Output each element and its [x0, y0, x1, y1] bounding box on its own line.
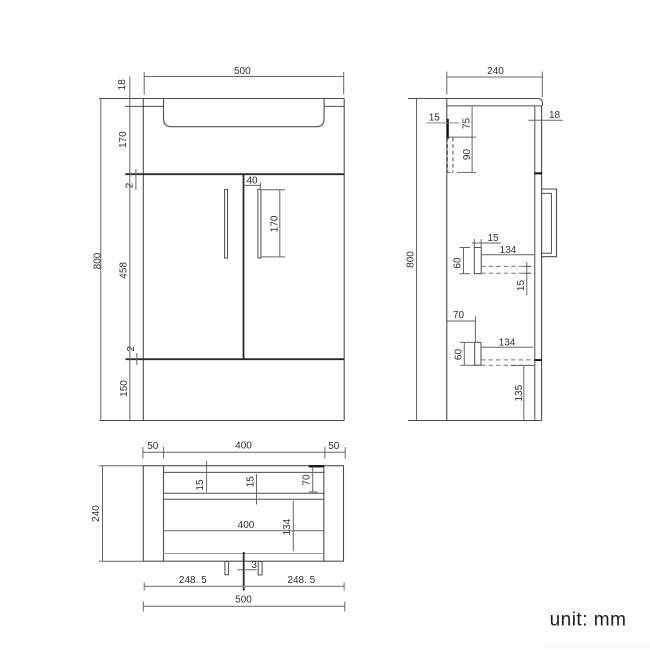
- svg-text:2: 2: [125, 182, 136, 188]
- svg-text:248. 5: 248. 5: [287, 575, 315, 586]
- svg-text:170: 170: [118, 131, 129, 148]
- svg-text:3: 3: [251, 560, 257, 571]
- svg-text:60: 60: [453, 257, 464, 269]
- svg-text:400: 400: [238, 520, 255, 531]
- svg-text:15: 15: [429, 113, 441, 124]
- svg-text:70: 70: [453, 310, 465, 321]
- svg-text:15: 15: [195, 479, 206, 491]
- svg-text:150: 150: [119, 380, 130, 397]
- svg-text:248. 5: 248. 5: [179, 575, 207, 586]
- svg-text:unit: mm: unit: mm: [550, 610, 627, 631]
- svg-text:240: 240: [91, 505, 102, 522]
- svg-text:800: 800: [93, 252, 104, 269]
- svg-text:2: 2: [126, 346, 137, 352]
- svg-text:134: 134: [499, 337, 516, 348]
- svg-text:70: 70: [301, 474, 312, 486]
- svg-text:170: 170: [270, 215, 281, 232]
- svg-text:75: 75: [462, 118, 473, 130]
- svg-text:134: 134: [500, 245, 517, 256]
- svg-text:458: 458: [119, 262, 130, 279]
- svg-text:500: 500: [234, 66, 251, 77]
- svg-text:15: 15: [487, 233, 499, 244]
- svg-text:800: 800: [405, 251, 416, 268]
- svg-text:240: 240: [487, 66, 504, 77]
- svg-text:15: 15: [516, 280, 527, 292]
- svg-text:15: 15: [246, 476, 257, 488]
- svg-text:134: 134: [282, 518, 293, 535]
- svg-text:500: 500: [235, 594, 252, 605]
- svg-text:18: 18: [549, 110, 561, 121]
- svg-text:18: 18: [117, 79, 128, 91]
- svg-text:135: 135: [514, 384, 525, 401]
- svg-text:40: 40: [246, 176, 258, 187]
- svg-text:400: 400: [235, 441, 252, 452]
- svg-text:50: 50: [328, 441, 340, 452]
- svg-text:50: 50: [147, 441, 159, 452]
- svg-text:90: 90: [462, 149, 473, 161]
- svg-text:60: 60: [454, 349, 465, 361]
